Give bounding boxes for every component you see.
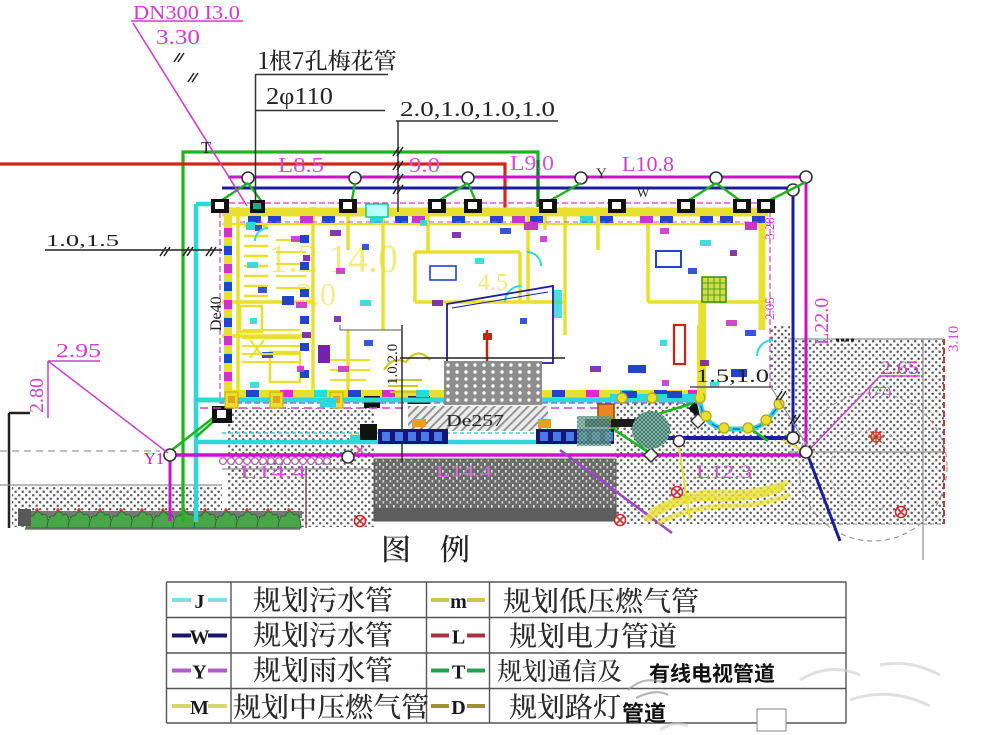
svg-text:M: M	[190, 697, 209, 719]
svg-text:L9.0: L9.0	[510, 151, 554, 175]
svg-text:2.95: 2.95	[56, 340, 101, 362]
svg-text:2.65: 2.65	[880, 358, 919, 379]
svg-text:L14.4: L14.4	[436, 462, 493, 481]
svg-text:D: D	[451, 697, 465, 719]
svg-text:W: W	[637, 185, 650, 200]
svg-text:(77): (77)	[868, 385, 892, 400]
svg-text:Y: Y	[596, 166, 607, 182]
svg-text:L22.0: L22.0	[811, 298, 833, 345]
svg-text:De257: De257	[446, 411, 505, 430]
svg-text:2.0,1.0,1.0,1.0: 2.0,1.0,1.0,1.0	[400, 97, 555, 121]
svg-text:4.5: 4.5	[478, 270, 508, 296]
svg-text:2.05: 2.05	[762, 297, 777, 320]
svg-text:1.5,1.0: 1.5,1.0	[696, 366, 769, 387]
svg-text:L8.5: L8.5	[278, 153, 324, 177]
svg-text:2.80: 2.80	[26, 378, 48, 413]
svg-text:3.28: 3.28	[762, 217, 777, 240]
svg-text:m: m	[450, 591, 467, 613]
svg-text:L14.4: L14.4	[240, 462, 307, 483]
svg-text:T: T	[201, 138, 212, 157]
svg-text:L: L	[452, 627, 465, 649]
svg-text:DN300 I3.0: DN300 I3.0	[133, 2, 240, 24]
svg-text:J: J	[195, 591, 205, 613]
svg-text:2φ110: 2φ110	[266, 84, 333, 110]
svg-text:Y: Y	[192, 662, 207, 684]
svg-text:3.10: 3.10	[946, 326, 962, 352]
svg-text:3.30: 3.30	[156, 25, 200, 49]
svg-text:Y1: Y1	[144, 449, 164, 468]
svg-text:L10.8: L10.8	[622, 152, 674, 176]
svg-text:T: T	[452, 662, 466, 684]
svg-text:De40: De40	[208, 296, 225, 331]
svg-text:1.0.2.0: 1.0.2.0	[385, 344, 401, 385]
svg-text:L12.3: L12.3	[696, 462, 752, 483]
svg-text:1.0,1.5: 1.0,1.5	[46, 231, 119, 250]
svg-text:1.2 14.0: 1.2 14.0	[268, 236, 398, 281]
svg-text:9.0: 9.0	[409, 153, 440, 177]
svg-text:W: W	[190, 627, 210, 649]
